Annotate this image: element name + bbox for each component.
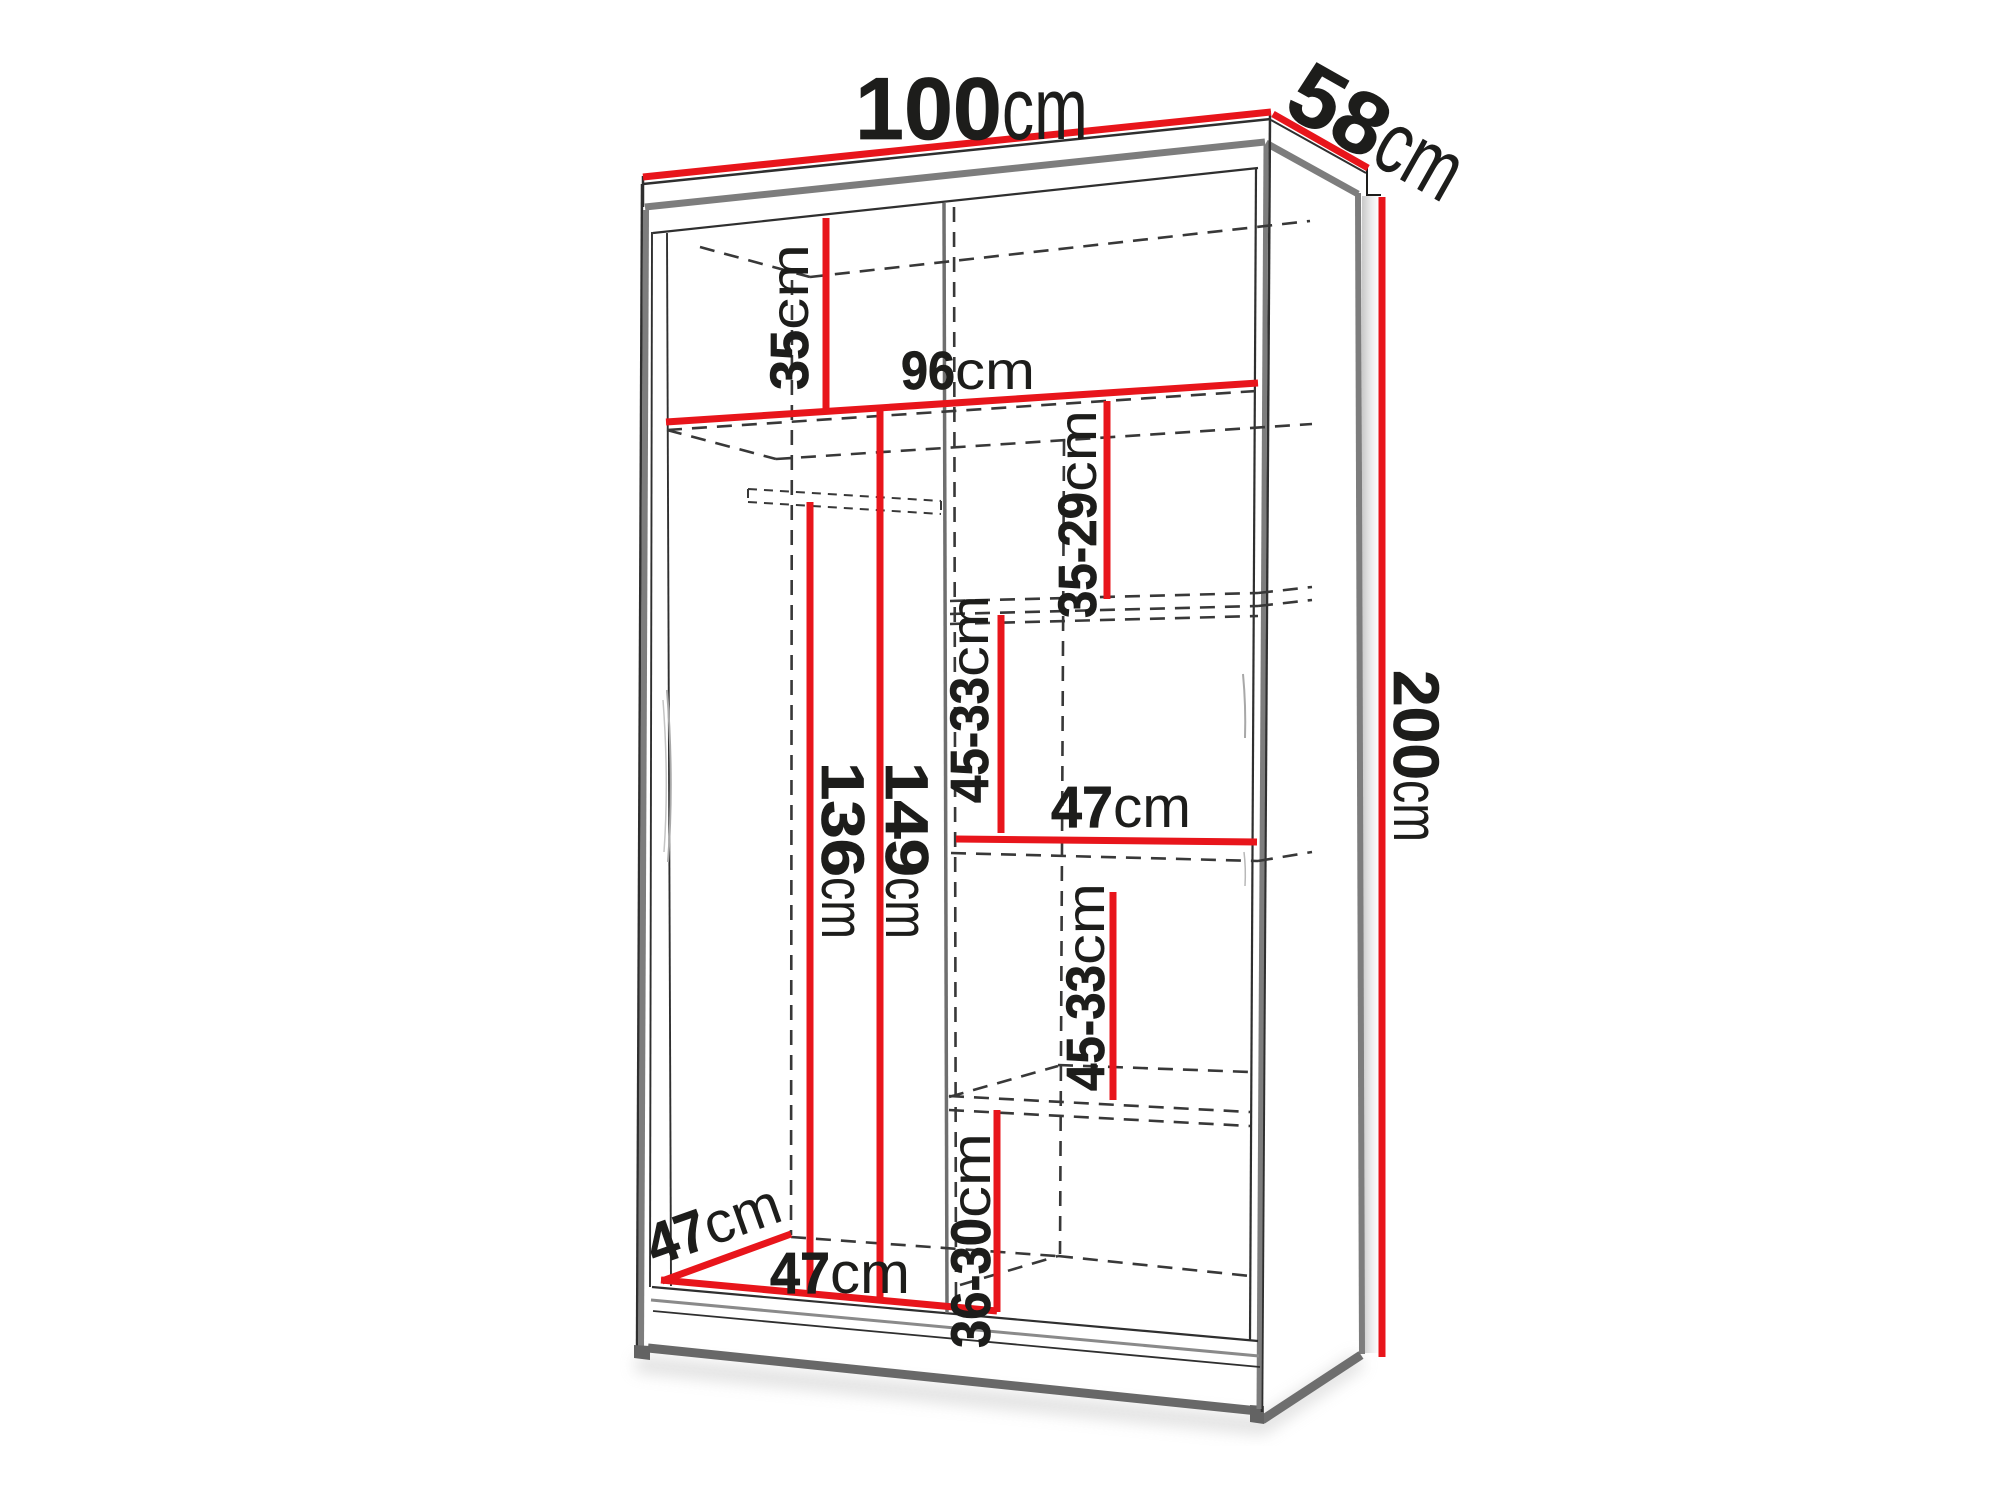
svg-text:47cm: 47cm: [770, 1241, 910, 1306]
svg-text:100cm: 100cm: [855, 59, 1088, 158]
svg-text:200cm: 200cm: [1380, 670, 1452, 842]
svg-text:45-33cm: 45-33cm: [1056, 883, 1116, 1091]
svg-text:47cm: 47cm: [1051, 775, 1191, 840]
svg-text:149cm: 149cm: [873, 762, 940, 939]
svg-text:45-33cm: 45-33cm: [940, 595, 1000, 803]
svg-text:35-29cm: 35-29cm: [1048, 410, 1108, 618]
svg-text:36-30cm: 36-30cm: [939, 1133, 1002, 1348]
svg-text:136cm: 136cm: [809, 762, 876, 939]
svg-text:96cm: 96cm: [901, 341, 1035, 401]
svg-text:35cm: 35cm: [760, 244, 820, 390]
